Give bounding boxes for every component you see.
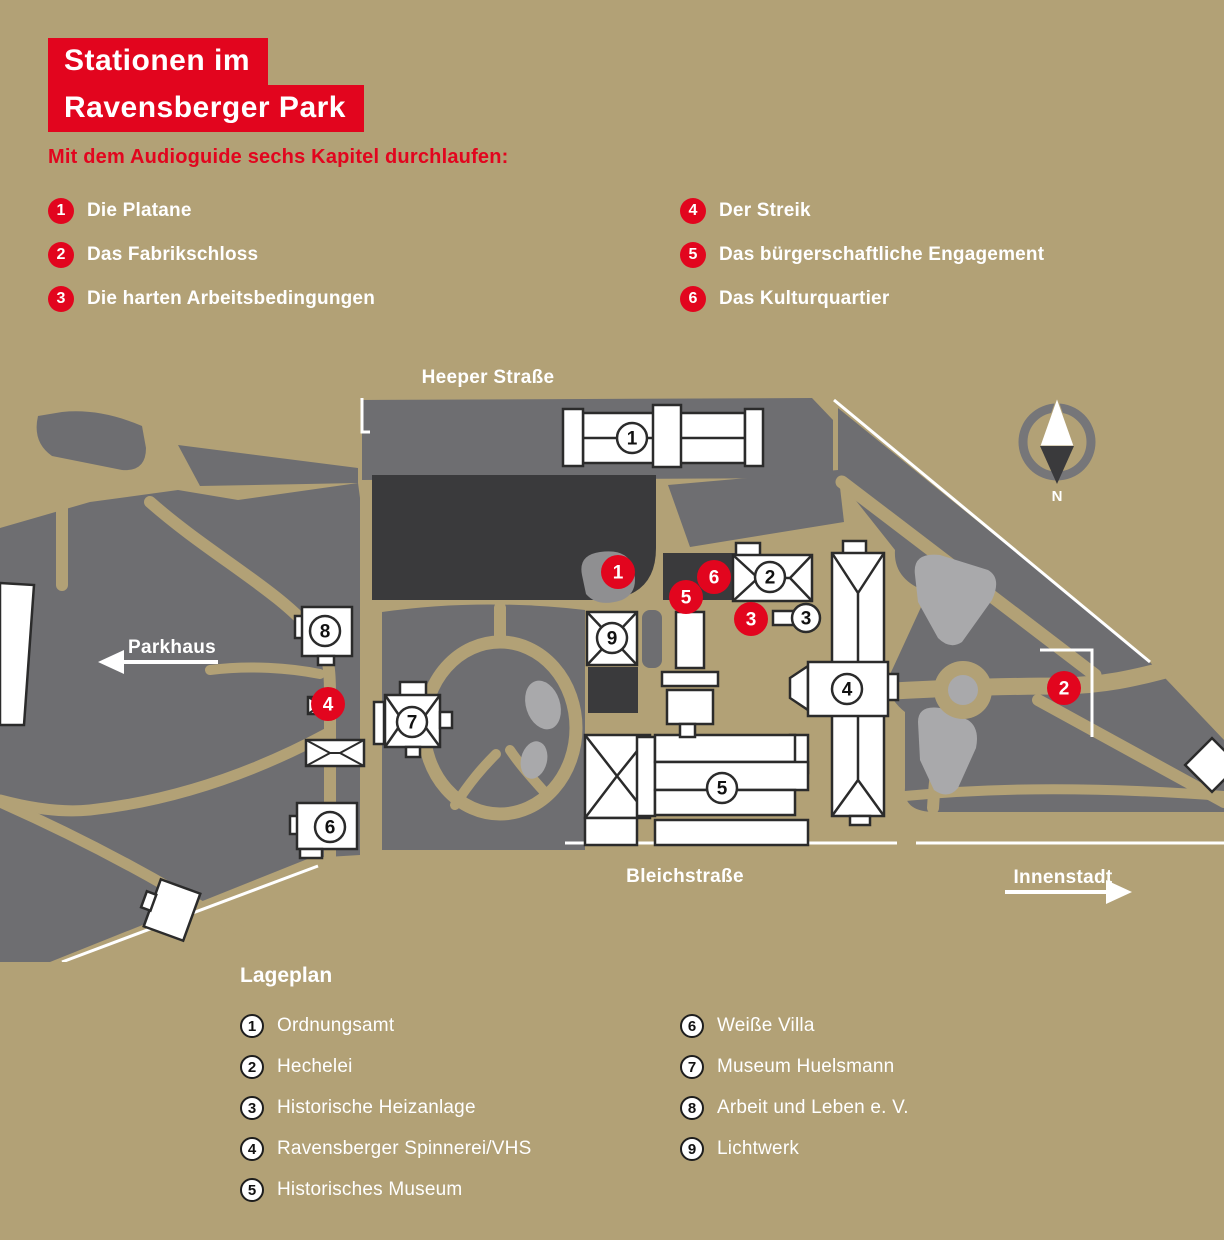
svg-text:3: 3	[746, 610, 757, 631]
svg-text:3: 3	[801, 609, 812, 630]
station-label: Das Fabrikschloss	[87, 244, 258, 266]
list-item: 1 Die Platane	[48, 196, 375, 226]
legend-badge: 3	[240, 1096, 264, 1120]
audioguide-list-right: 4 Der Streik 5 Das bürgerschaftliche Eng…	[680, 196, 1044, 328]
legend-list-left: 1 Ordnungsamt 2 Hechelei 3 Historische H…	[240, 1012, 531, 1217]
svg-text:6: 6	[709, 568, 720, 589]
list-item: 9 Lichtwerk	[680, 1135, 909, 1163]
page-title-line2: Ravensberger Park	[48, 85, 364, 132]
station-label: Die harten Arbeitsbedingungen	[87, 288, 375, 310]
legend-badge: 9	[680, 1137, 704, 1161]
svg-text:2: 2	[765, 568, 776, 589]
legend-heading: Lageplan	[240, 964, 332, 988]
station-badge-2: 2	[1047, 671, 1081, 705]
legend-badge: 2	[240, 1055, 264, 1079]
page-title-line1: Stationen im	[48, 38, 268, 85]
building-badge-1: 1	[617, 423, 647, 453]
park-map: 1 2 3 4 5 6 7 8 9 1 2 3 4 5 6 Heeper Str…	[0, 350, 1224, 962]
legend-badge: 6	[680, 1014, 704, 1038]
station-badge-1: 1	[601, 555, 635, 589]
svg-text:5: 5	[681, 588, 692, 609]
compass-label: N	[1052, 488, 1063, 505]
station-badge: 6	[680, 286, 706, 312]
list-item: 7 Museum Huelsmann	[680, 1053, 909, 1081]
svg-text:2: 2	[1059, 679, 1070, 700]
list-item: 2 Das Fabrikschloss	[48, 240, 375, 270]
list-item: 3 Historische Heizanlage	[240, 1094, 531, 1122]
station-label: Das Kulturquartier	[719, 288, 889, 310]
list-item: 4 Der Streik	[680, 196, 1044, 226]
roundabout	[934, 661, 992, 719]
svg-text:6: 6	[325, 818, 336, 839]
legend-badge: 5	[240, 1178, 264, 1202]
svg-text:4: 4	[323, 695, 334, 716]
building-badge-2: 2	[755, 562, 785, 592]
legend-label: Lichtwerk	[717, 1138, 799, 1160]
legend-label: Weiße Villa	[717, 1015, 815, 1037]
station-badge-3: 3	[734, 602, 768, 636]
legend-label: Arbeit und Leben e. V.	[717, 1097, 909, 1119]
list-item: 3 Die harten Arbeitsbedingungen	[48, 284, 375, 314]
station-badge: 4	[680, 198, 706, 224]
building-badge-5: 5	[707, 773, 737, 803]
legend-list-right: 6 Weiße Villa 7 Museum Huelsmann 8 Arbei…	[680, 1012, 909, 1176]
station-label: Die Platane	[87, 200, 192, 222]
building-badge-7: 7	[397, 707, 427, 737]
audioguide-subtitle: Mit dem Audioguide sechs Kapitel durchla…	[48, 146, 509, 169]
svg-text:1: 1	[627, 429, 638, 450]
direction-label-innenstadt: Innenstadt	[1013, 867, 1112, 888]
station-label: Der Streik	[719, 200, 811, 222]
building-badge-9: 9	[597, 623, 627, 653]
list-item: 8 Arbeit und Leben e. V.	[680, 1094, 909, 1122]
station-badge: 2	[48, 242, 74, 268]
station-badge-4: 4	[311, 687, 345, 721]
list-item: 6 Das Kulturquartier	[680, 284, 1044, 314]
list-item: 5 Das bürgerschaftliche Engagement	[680, 240, 1044, 270]
list-item: 2 Hechelei	[240, 1053, 531, 1081]
building-badge-6: 6	[315, 812, 345, 842]
audioguide-list-left: 1 Die Platane 2 Das Fabrikschloss 3 Die …	[48, 196, 375, 328]
direction-label-parkhaus: Parkhaus	[128, 637, 216, 658]
legend-label: Ordnungsamt	[277, 1015, 394, 1037]
list-item: 1 Ordnungsamt	[240, 1012, 531, 1040]
page-title: Stationen im Ravensberger Park	[48, 38, 364, 132]
legend-badge: 7	[680, 1055, 704, 1079]
station-badge-6: 6	[697, 560, 731, 594]
legend-label: Hechelei	[277, 1056, 353, 1078]
svg-text:8: 8	[320, 622, 331, 643]
station-label: Das bürgerschaftliche Engagement	[719, 244, 1044, 266]
street-label-bleich: Bleichstraße	[626, 866, 744, 887]
list-item: 6 Weiße Villa	[680, 1012, 909, 1040]
list-item: 5 Historisches Museum	[240, 1176, 531, 1204]
station-badge: 5	[680, 242, 706, 268]
legend-label: Historische Heizanlage	[277, 1097, 476, 1119]
legend-label: Historisches Museum	[277, 1179, 462, 1201]
station-badge: 1	[48, 198, 74, 224]
legend-badge: 1	[240, 1014, 264, 1038]
list-item: 4 Ravensberger Spinnerei/VHS	[240, 1135, 531, 1163]
svg-text:4: 4	[842, 680, 853, 701]
station-badge-5: 5	[669, 580, 703, 614]
legend-badge: 8	[680, 1096, 704, 1120]
svg-text:5: 5	[717, 779, 728, 800]
svg-text:7: 7	[407, 713, 418, 734]
legend-badge: 4	[240, 1137, 264, 1161]
svg-text:9: 9	[607, 629, 618, 650]
building-badge-8: 8	[310, 616, 340, 646]
building-badge-4: 4	[832, 674, 862, 704]
street-label-heeper: Heeper Straße	[422, 367, 555, 388]
station-badge: 3	[48, 286, 74, 312]
building-badge-3: 3	[792, 604, 820, 632]
legend-label: Museum Huelsmann	[717, 1056, 894, 1078]
legend-label: Ravensberger Spinnerei/VHS	[277, 1138, 531, 1160]
svg-text:1: 1	[613, 563, 624, 584]
